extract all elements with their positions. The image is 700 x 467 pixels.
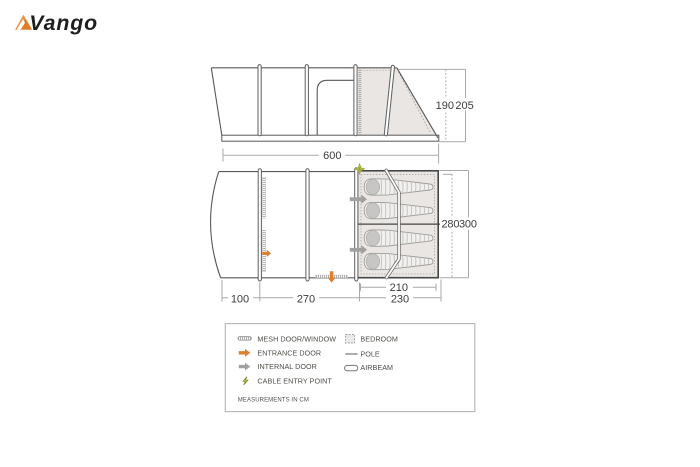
svg-text:ENTRANCE DOOR: ENTRANCE DOOR (257, 349, 321, 358)
svg-text:Vango: Vango (29, 11, 98, 35)
svg-text:MESH DOOR/WINDOW: MESH DOOR/WINDOW (257, 334, 336, 343)
svg-text:MEASUREMENTS IN CM: MEASUREMENTS IN CM (238, 397, 309, 403)
svg-text:205: 205 (455, 100, 473, 112)
svg-text:190: 190 (436, 100, 454, 112)
svg-text:POLE: POLE (360, 350, 380, 359)
svg-text:270: 270 (297, 294, 315, 306)
svg-text:100: 100 (231, 294, 249, 306)
svg-text:AIRBEAM: AIRBEAM (360, 363, 393, 372)
svg-text:INTERNAL DOOR: INTERNAL DOOR (257, 362, 317, 371)
svg-text:280: 280 (442, 218, 460, 230)
svg-text:300: 300 (459, 218, 477, 230)
svg-text:BEDROOM: BEDROOM (360, 334, 398, 343)
svg-text:600: 600 (323, 150, 341, 162)
svg-text:CABLE ENTRY POINT: CABLE ENTRY POINT (257, 377, 332, 386)
svg-text:210: 210 (390, 282, 408, 294)
svg-text:230: 230 (391, 294, 409, 306)
